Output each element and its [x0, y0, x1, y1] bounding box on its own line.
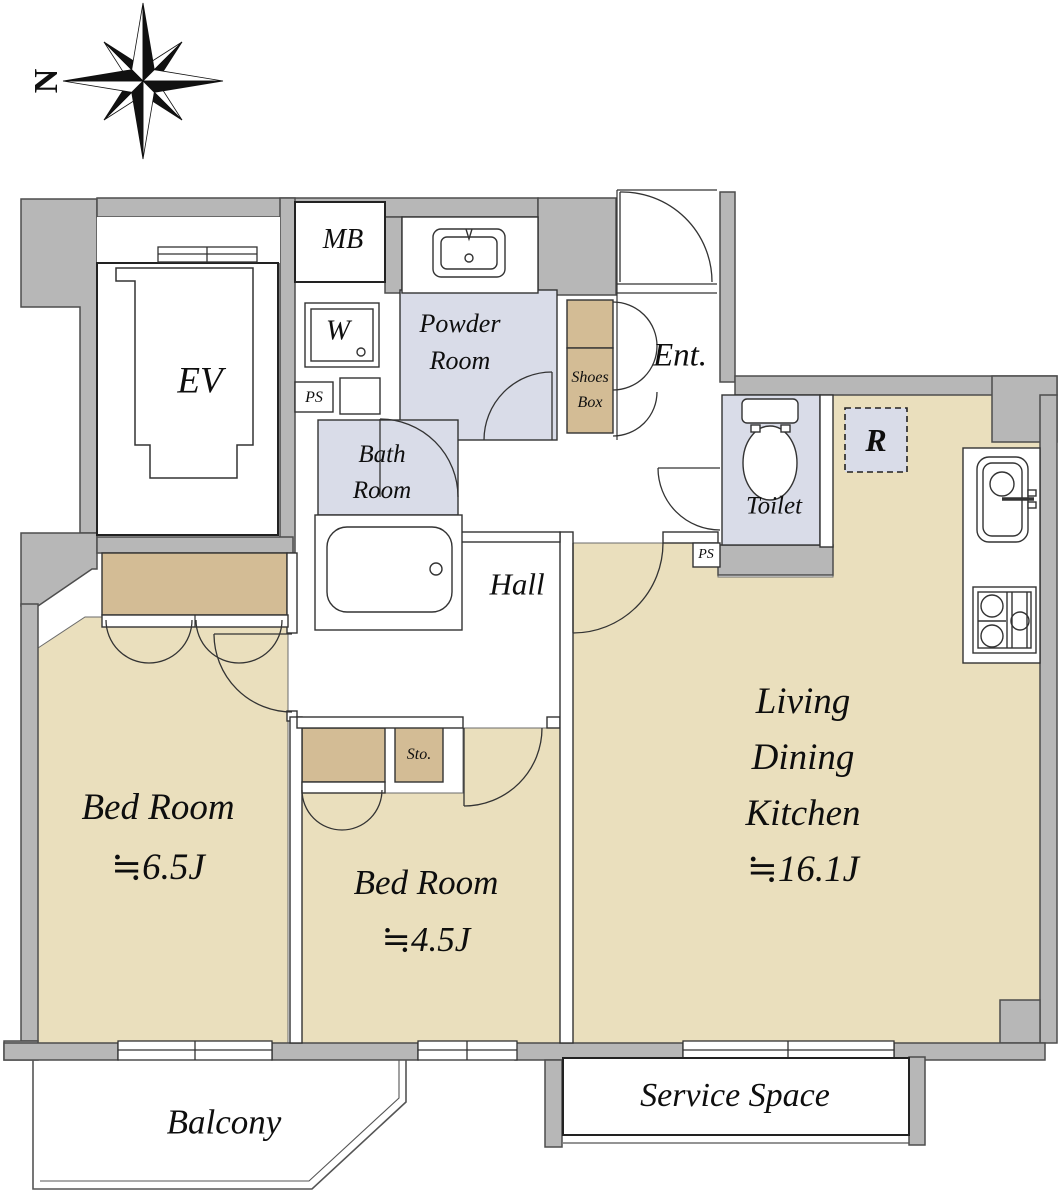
label-ldk-size: ≒16.1J	[745, 842, 860, 898]
label-entrance: Ent.	[653, 340, 707, 373]
label-living-dining-kitchen: Living Dining Kitchen ≒16.1J	[745, 674, 860, 898]
label-powder-room: Powder Room	[420, 305, 501, 379]
label-storage: Sto.	[407, 747, 431, 763]
label-shoes-box-line2: Box	[571, 390, 608, 415]
label-shoes-box-line1: Shoes	[571, 365, 608, 390]
toilet-door	[658, 468, 720, 530]
label-service-space: Service Space	[640, 1079, 830, 1113]
label-bedroom-1: Bed Room ≒6.5J	[81, 778, 234, 898]
label-bath-room-line2: Room	[353, 473, 411, 509]
toilet-icon	[742, 399, 798, 500]
washbasin-icon	[402, 217, 538, 293]
entrance-door	[617, 192, 717, 293]
label-toilet: Toilet	[746, 494, 802, 519]
label-ldk-line1: Living	[745, 674, 860, 730]
label-hall: Hall	[489, 569, 544, 600]
elevator-door	[158, 247, 257, 262]
label-powder-room-line2: Room	[420, 342, 501, 379]
label-bedroom-2-size: ≒4.5J	[354, 911, 499, 968]
bathtub-icon	[315, 515, 462, 630]
label-bedroom-1-name: Bed Room	[81, 778, 234, 838]
shoes-box-doors	[613, 302, 657, 436]
label-powder-room-line1: Powder	[420, 305, 501, 342]
label-bath-room-line1: Bath	[353, 437, 411, 473]
compass-north-label: N	[28, 68, 65, 93]
label-ldk-line2: Dining	[745, 730, 860, 786]
label-elevator: EV	[177, 363, 222, 400]
label-ldk-line3: Kitchen	[745, 786, 860, 842]
shoes-box-upper	[567, 300, 613, 348]
bedroom-1-window	[118, 1041, 272, 1060]
label-refrigerator: R	[865, 424, 886, 456]
label-balcony: Balcony	[167, 1105, 282, 1140]
label-bath-room: Bath Room	[353, 437, 411, 509]
kitchen-sink-icon	[977, 457, 1036, 542]
label-washing-machine: W	[326, 317, 350, 346]
stove-icon	[973, 587, 1036, 653]
floor-plan: N EV MB Powder Room W PS Shoes Box Ent. …	[0, 0, 1062, 1200]
label-bedroom-2-name: Bed Room	[354, 854, 499, 911]
label-bedroom-2: Bed Room ≒4.5J	[354, 854, 499, 968]
label-bedroom-1-size: ≒6.5J	[81, 838, 234, 898]
label-shoes-box: Shoes Box	[571, 365, 608, 415]
label-meter-box: MB	[323, 226, 363, 254]
bedroom-2-window	[418, 1041, 517, 1060]
label-pipe-space-left: PS	[305, 390, 323, 406]
bedroom-1-closet	[102, 553, 287, 615]
label-pipe-space-right: PS	[698, 548, 714, 562]
compass-rose-icon	[63, 3, 223, 159]
bedroom-2-closet	[302, 728, 385, 782]
utility-box	[340, 378, 380, 414]
